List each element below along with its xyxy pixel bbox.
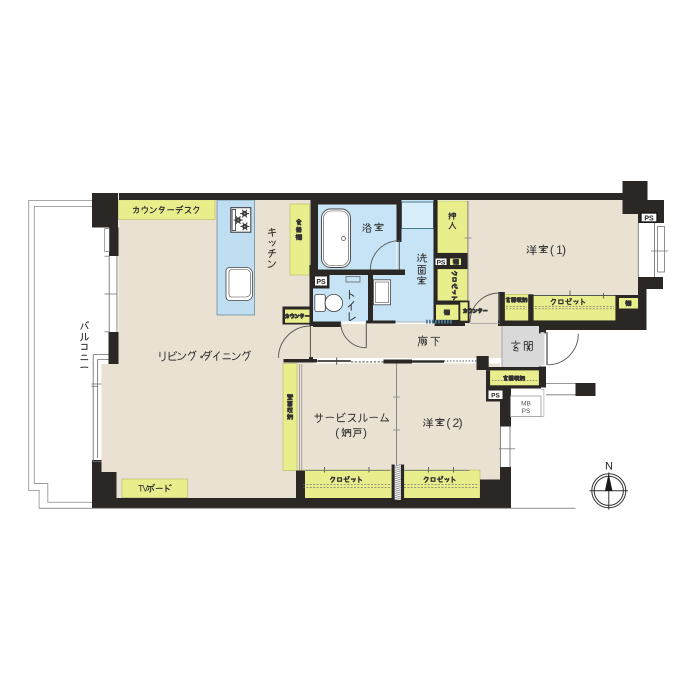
svg-text:PS: PS	[316, 279, 326, 286]
svg-text:PS: PS	[437, 259, 446, 266]
svg-text:MB: MB	[521, 400, 531, 407]
svg-text:PS: PS	[644, 215, 654, 222]
svg-text:): )	[459, 416, 463, 430]
svg-text:(: (	[335, 425, 339, 439]
svg-text:): )	[562, 243, 566, 257]
svg-text:): )	[363, 425, 367, 439]
svg-text:PS: PS	[522, 408, 531, 415]
svg-text:V: V	[142, 483, 148, 493]
svg-text:N: N	[605, 460, 613, 472]
svg-text:PS: PS	[491, 393, 500, 400]
